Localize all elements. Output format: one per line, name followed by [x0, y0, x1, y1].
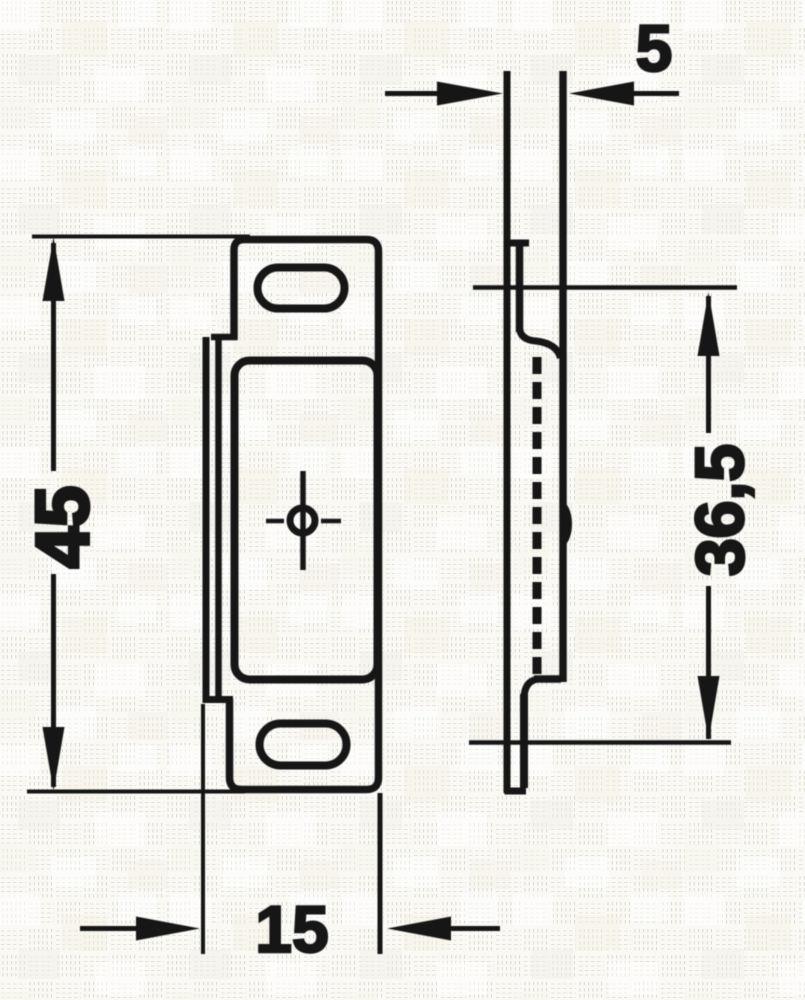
svg-text:5: 5 [636, 11, 673, 85]
svg-text:36,5: 36,5 [682, 444, 758, 576]
svg-text:45: 45 [21, 486, 104, 568]
svg-text:15: 15 [255, 892, 328, 966]
